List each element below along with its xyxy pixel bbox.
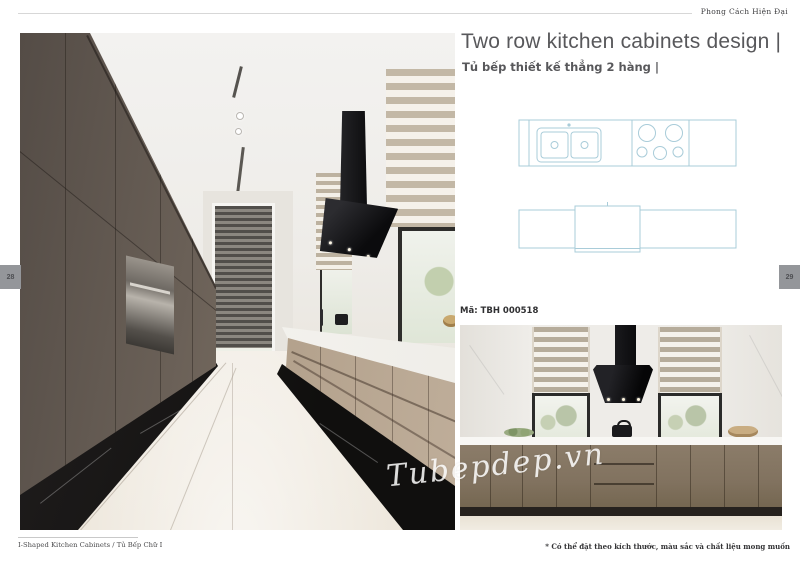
window-right — [658, 327, 722, 437]
cabinet-modules — [519, 202, 736, 252]
cabinet-seam — [522, 445, 523, 507]
ceiling-spotlight — [236, 112, 244, 120]
elevation-drawing — [518, 200, 738, 256]
zebra-blind — [532, 327, 590, 393]
bread-basket — [728, 426, 758, 437]
faucet-dot — [567, 123, 570, 126]
footer-rule — [18, 537, 138, 538]
double-sink-icon — [537, 123, 601, 162]
hood-lamp — [329, 241, 333, 245]
floor — [460, 516, 782, 530]
hood-lamp — [637, 398, 640, 401]
page-number-left: 28 — [0, 265, 21, 289]
catalog-page: Phong Cách Hiện Đại — [0, 0, 800, 565]
ceiling-light-strip — [236, 147, 245, 193]
hood-lamp — [348, 248, 352, 252]
hood-lamp — [607, 398, 610, 401]
page-number-right: 29 — [779, 265, 800, 289]
zebra-blind — [658, 327, 722, 393]
hob-icon — [637, 125, 683, 160]
kitchen-photo-detail — [460, 325, 782, 530]
range-hood-chimney — [340, 111, 367, 207]
window-left — [532, 327, 590, 437]
ceiling-spotlight — [235, 128, 242, 135]
oven-handle — [130, 282, 170, 294]
page-subtitle: Tủ bếp thiết kế thẳng 2 hàng | — [462, 60, 659, 74]
cabinet-top-edge — [86, 35, 217, 289]
window-glass — [658, 393, 722, 443]
footer-note: * Có thể đặt theo kích thước, màu sắc và… — [545, 542, 790, 551]
range-hood-body — [593, 365, 653, 403]
cabinet-seam — [724, 445, 725, 507]
product-code: Mã: TBH 000518 — [460, 306, 538, 316]
hood-lamp — [622, 398, 625, 401]
cabinet-seam — [556, 445, 557, 507]
counter-plant — [504, 428, 534, 437]
faucet — [320, 309, 323, 326]
marble-vein — [749, 335, 782, 397]
built-in-oven — [126, 255, 174, 354]
zebra-blind-near — [386, 69, 455, 227]
cabinet-seam — [65, 33, 66, 530]
floor-seam — [232, 363, 233, 530]
kettle — [612, 425, 632, 437]
page-title: Two row kitchen cabinets design | — [461, 30, 781, 54]
toe-kick — [460, 507, 782, 516]
fruit-basket — [443, 315, 455, 327]
cabinet-seam — [656, 445, 657, 507]
range-hood-chimney — [615, 325, 636, 371]
footer-category: I-Shaped Kitchen Cabinets / Tủ Bếp Chữ I — [18, 541, 162, 549]
plan-view-drawing — [518, 116, 738, 172]
cabinet-seam — [690, 445, 691, 507]
ceiling-light-strip — [232, 66, 243, 98]
header-rule — [18, 13, 692, 14]
door-blind — [215, 206, 272, 348]
cabinet-seam — [758, 445, 759, 507]
kitchen-photo-main — [20, 33, 455, 530]
base-cabinet-row — [460, 445, 782, 507]
hood-lamp — [366, 255, 370, 259]
cabinet-seam — [590, 445, 591, 507]
cabinet-seam — [490, 445, 491, 507]
header-tagline: Phong Cách Hiện Đại — [701, 7, 788, 16]
drawer-groove — [594, 483, 654, 485]
drawer-groove — [594, 463, 654, 465]
window-glass — [532, 393, 590, 443]
counter-appliance — [335, 314, 348, 325]
marble-vein — [469, 345, 504, 395]
